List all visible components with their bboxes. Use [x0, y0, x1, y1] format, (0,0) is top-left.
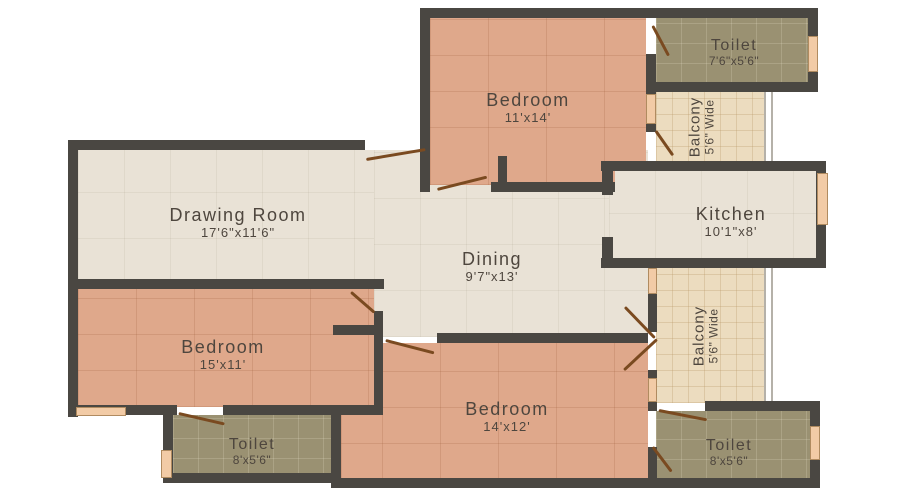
wall: [601, 258, 826, 268]
room-label-kitchen: Kitchen 10'1"x8': [696, 204, 767, 240]
room-label-toilet-bottom-right: Toilet 8'x5'6": [706, 437, 752, 469]
room-dims: 14'x12': [465, 420, 549, 435]
room-name: Kitchen: [696, 204, 767, 225]
bedroom-bottom-floor-notch: [341, 415, 382, 480]
room-dims: 5'6" Wide: [708, 306, 722, 366]
room-dims: 15'x11': [181, 358, 265, 373]
room-name: Bedroom: [181, 337, 265, 358]
wall: [648, 292, 657, 332]
room-label-balcony-right: Balcony 5'6" Wide: [690, 306, 721, 366]
room-dims: 11'x14': [486, 111, 570, 126]
wall: [374, 311, 383, 415]
wall: [491, 182, 615, 192]
room-dims: 7'6"x5'6": [709, 55, 759, 69]
room-name: Balcony: [690, 306, 707, 366]
window-sill: [646, 94, 656, 124]
room-dims: 9'7"x13': [462, 270, 522, 285]
wall: [223, 405, 383, 415]
wall: [68, 279, 384, 289]
wall: [68, 140, 78, 417]
window-sill: [808, 36, 818, 72]
window-sill: [810, 426, 820, 460]
room-name: Bedroom: [486, 90, 570, 111]
wall: [646, 82, 818, 92]
wall: [602, 161, 613, 195]
room-name: Bedroom: [465, 399, 549, 420]
window-sill: [161, 450, 172, 478]
wall: [331, 478, 820, 488]
balcony-railing: [764, 90, 773, 163]
wall: [333, 325, 374, 335]
room-name: Balcony: [686, 97, 703, 157]
room-dims: 8'x5'6": [229, 454, 275, 468]
window-sill: [648, 268, 657, 294]
wall: [68, 140, 365, 150]
room-label-bedroom-bottom: Bedroom 14'x12': [465, 399, 549, 435]
wall: [420, 8, 818, 18]
room-label-drawing-room: Drawing Room 17'6"x11'6": [169, 205, 306, 241]
room-dims: 5'6" Wide: [704, 97, 718, 157]
room-label-balcony-top: Balcony 5'6" Wide: [686, 97, 717, 157]
room-label-toilet-bottom-left: Toilet 8'x5'6": [229, 436, 275, 468]
wall: [437, 333, 648, 343]
room-label-toilet-top-right: Toilet 7'6"x5'6": [709, 37, 759, 69]
room-dims: 10'1"x8': [696, 225, 767, 240]
wall: [420, 8, 430, 192]
window-sill: [817, 173, 828, 225]
room-name: Dining: [462, 249, 522, 270]
window-sill: [76, 407, 126, 416]
room-label-bedroom-left: Bedroom 15'x11': [181, 337, 265, 373]
room-label-bedroom-top: Bedroom 11'x14': [486, 90, 570, 126]
room-name: Toilet: [709, 37, 759, 55]
room-name: Drawing Room: [169, 205, 306, 226]
room-label-dining: Dining 9'7"x13': [462, 249, 522, 285]
balcony-railing: [764, 264, 773, 405]
room-dims: 17'6"x11'6": [169, 226, 306, 241]
wall: [163, 473, 341, 483]
room-name: Toilet: [706, 437, 752, 455]
window-sill: [648, 378, 657, 402]
floor-plan: Drawing Room 17'6"x11'6" Dining 9'7"x13'…: [0, 0, 900, 500]
room-name: Toilet: [229, 436, 275, 454]
wall: [601, 161, 826, 171]
wall: [498, 156, 507, 184]
room-dims: 8'x5'6": [706, 455, 752, 469]
wall: [705, 401, 820, 411]
wall: [331, 407, 341, 483]
